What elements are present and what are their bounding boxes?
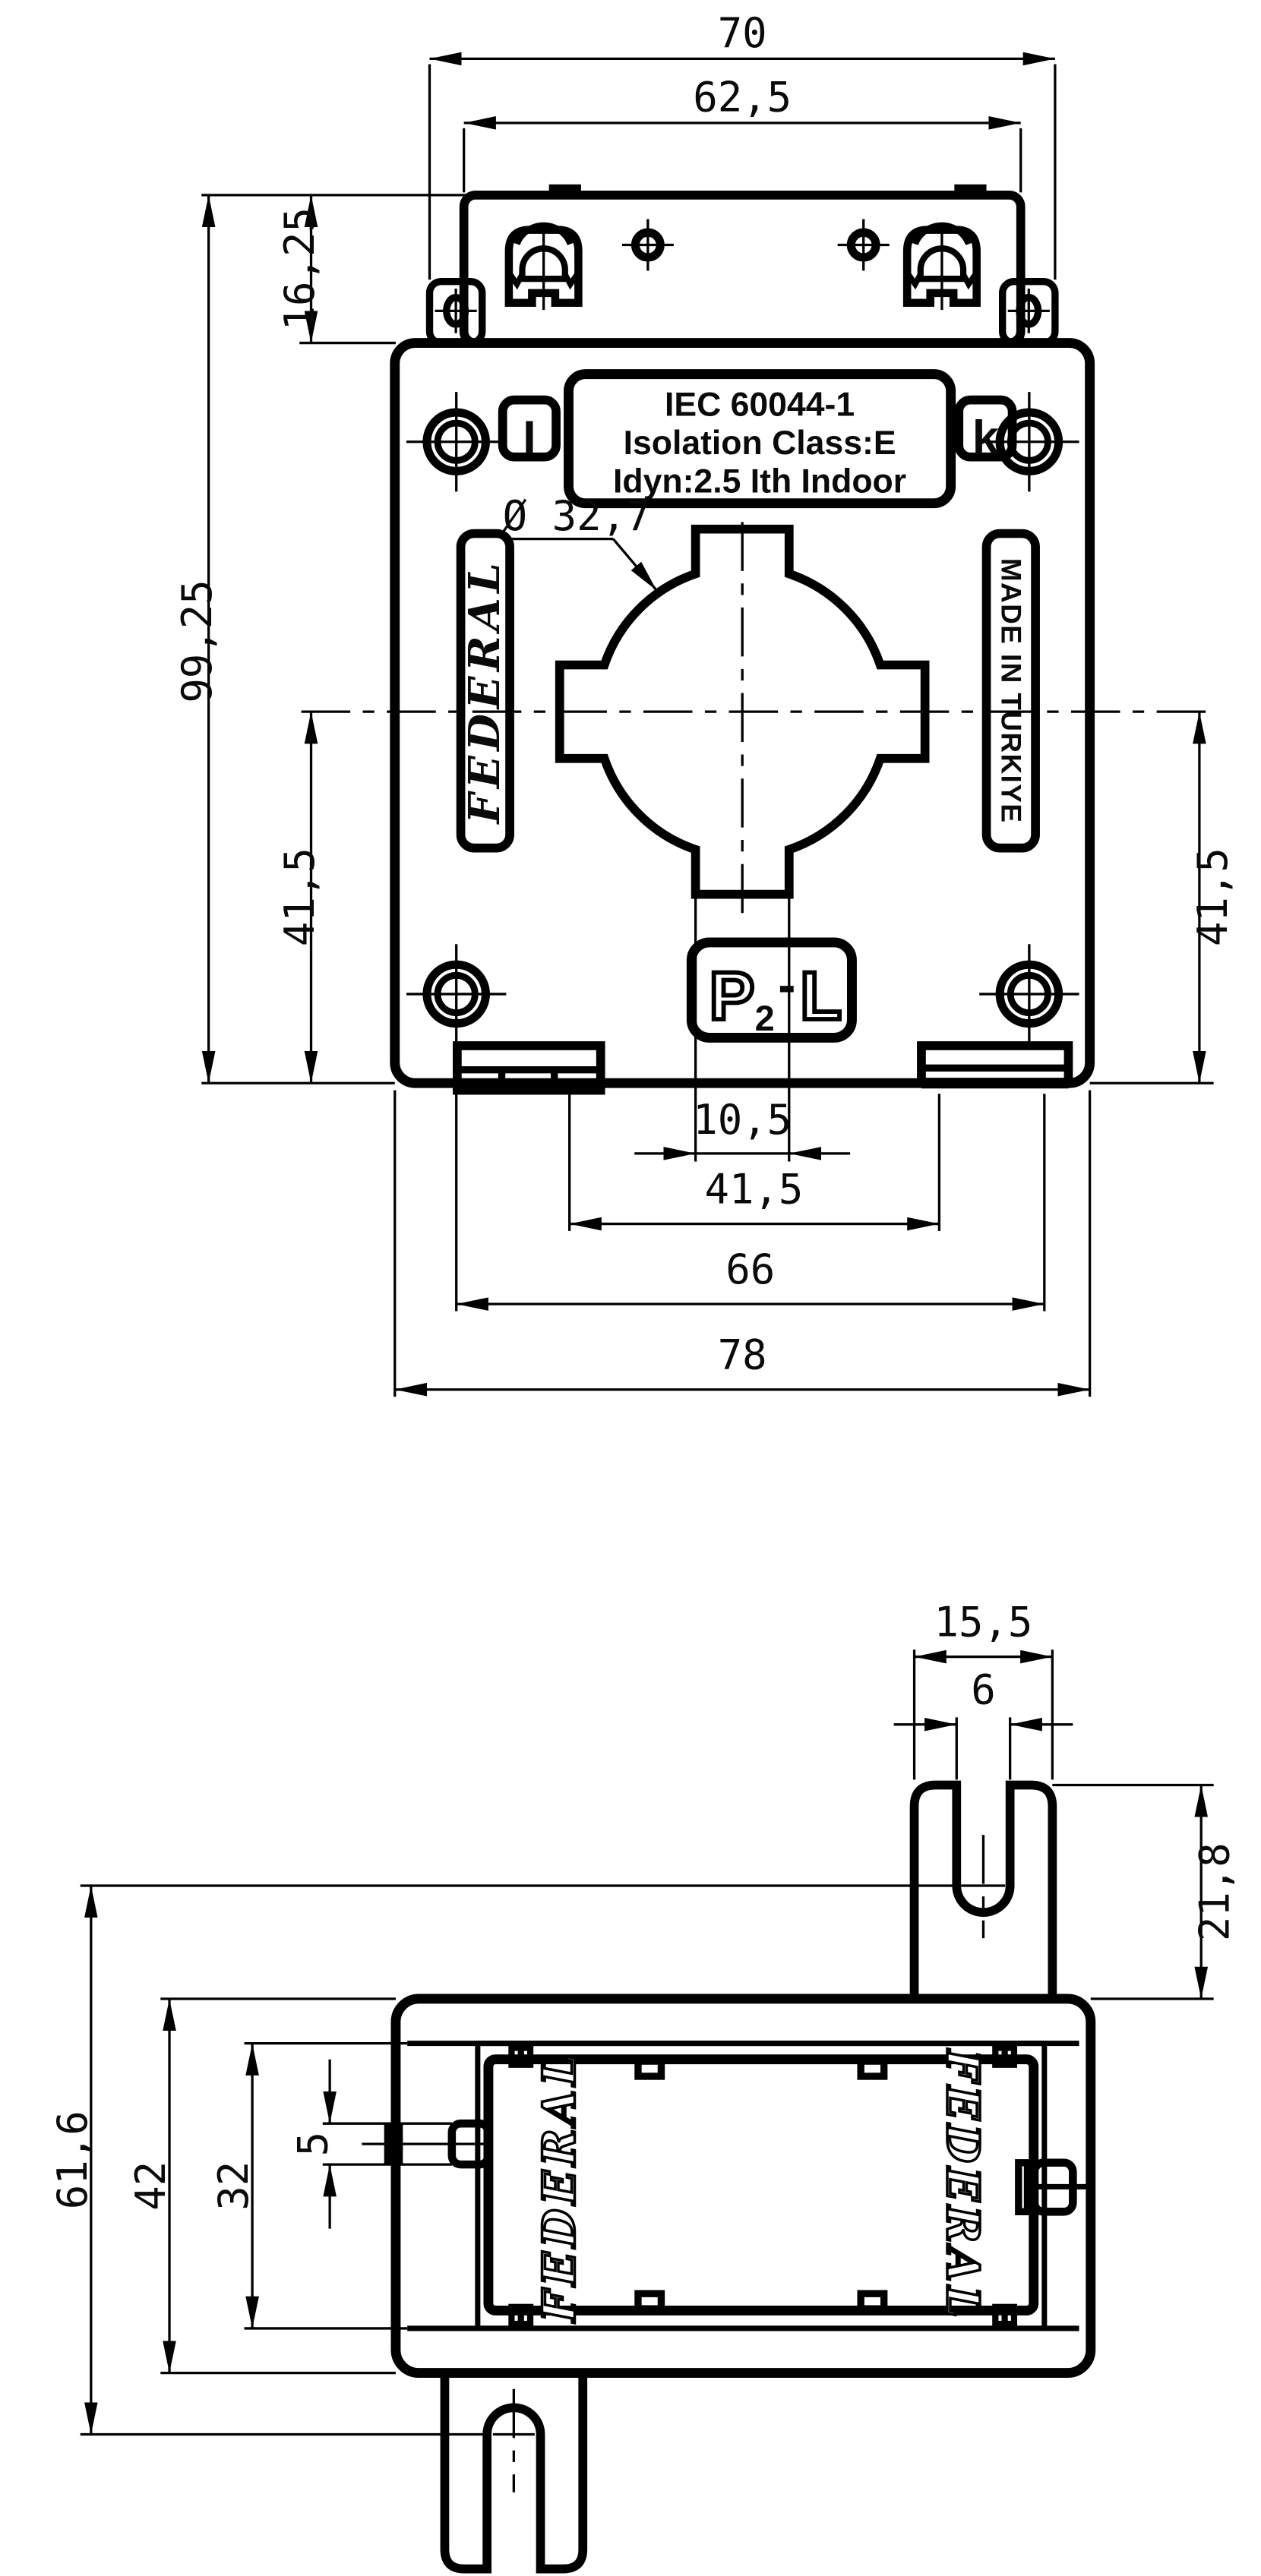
dim-label: 42 [127,2161,175,2211]
cert-line2: Isolation Class:E [624,425,896,462]
made-in-label: MADE IN TURKIYE [987,534,1036,848]
dim-notch-width: 10,5 [634,1096,850,1154]
screw-terminal-left [509,223,578,310]
dim-label: 41,5 [704,1166,803,1214]
dim-label: 41,5 [276,848,324,946]
dim-label: 5 [289,2132,337,2156]
foot-right [921,1046,1069,1088]
dim-label: 21,8 [1191,1842,1239,1941]
frame-tab [638,2061,661,2076]
dim-slot-width: 6 [894,1666,1073,1780]
ear-left [430,282,482,343]
dim-label: 62,5 [693,74,792,122]
dim-tab-height: 21,8 [1052,1785,1238,1998]
dim-terminal-span: 61,6 [49,1886,962,2435]
block-hole-right [838,219,890,271]
front-view: 70 62,5 [173,9,1237,1397]
screw-terminal-right [907,223,976,310]
latch-left [362,2123,488,2164]
mount-hole-top-left [406,392,506,491]
polarity-p: P [710,958,754,1034]
terminal-bump [549,185,581,197]
frame-tab [861,2293,883,2309]
dim-overall-height: 99,25 [173,195,221,1083]
dim-label: 99,25 [173,579,221,702]
cert-line1: IEC 60044-1 [665,387,855,424]
terminal-block-outline [464,195,1021,343]
dim-terminal-width: 62,5 [464,74,1021,193]
polarity-label: P 2 - L [691,942,852,1038]
latch-right [1019,2163,1091,2212]
dim-top-width: 70 [430,9,1055,279]
side-view: 15,5 6 21,8 [49,1599,1239,2569]
mount-hole-bottom-left [406,944,506,1043]
dim-body-height: 42 [127,1999,396,2373]
polarity-dash: - [778,955,795,1015]
technical-drawing: 70 62,5 [0,0,1261,2576]
dim-lower-right-height: 41,5 [1189,712,1237,1083]
brand-label: FEDERAL [460,534,510,848]
dim-label: 16,25 [276,207,324,330]
polarity-2: 2 [755,999,775,1038]
block-hole-left [622,219,674,271]
made-in-text: MADE IN TURKIYE [996,558,1027,823]
dim-label: 66 [725,1245,775,1293]
frame-tab [861,2061,883,2076]
upper-terminal-tab [915,1785,1053,1998]
certification-label: IEC 60044-1 Isolation Class:E Idyn:2.5 I… [568,374,950,504]
upper-tab-outline [915,1785,1053,1998]
ear-right [1003,282,1055,343]
dim-label: 32 [210,2161,258,2211]
dim-lower-left-height: 41,5 [276,712,324,1083]
dim-window-height: 32 [210,2044,407,2328]
lower-terminal-tab [444,2373,583,2569]
frame-tab [638,2293,661,2309]
polarity-l: L [800,958,841,1034]
mount-hole-bottom-right [979,944,1079,1043]
terminal-mark-letter: k [972,412,1000,465]
leader-line [613,539,656,591]
dim-terminal-height: 16,25 [276,195,324,343]
dim-label: 78 [718,1331,767,1379]
side-brand-left: FEDERAL [533,2050,586,2323]
dim-bore: Ø 32,7 [503,492,657,591]
cert-line3: Idyn:2.5 Ith Indoor [613,463,906,500]
latch-slot [1019,2163,1028,2212]
dim-label: Ø 32,7 [503,492,651,540]
dim-label: 15,5 [934,1599,1033,1646]
side-brand-right: FEDERAL [937,2048,989,2322]
dim-label: 41,5 [1189,848,1237,946]
brand-text: FEDERAL [460,558,510,826]
terminal-bump [954,185,986,197]
dim-label: 70 [718,9,767,57]
terminal-mark-l: I [503,400,556,466]
dim-label: 61,6 [49,2110,96,2209]
terminal-block [430,185,1055,343]
terminal-mark-letter: I [523,412,536,465]
foot-base [921,1078,1069,1088]
drawing-page: 70 62,5 [0,0,1261,2576]
dim-label: 10,5 [693,1096,792,1144]
dim-label: 6 [971,1666,995,1714]
